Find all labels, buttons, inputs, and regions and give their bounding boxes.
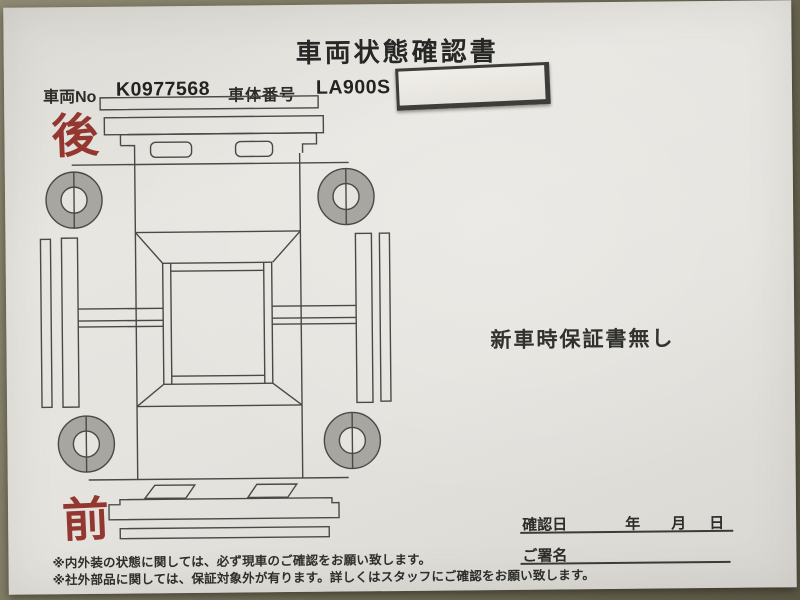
desk-background: { "photo": { "title": "車両状態確認書", "header… [0,0,800,600]
car-body-lines [39,95,392,539]
privacy-sticker [395,62,551,111]
document-paper: 車両状態確認書 車両No K0977568 車体番号 LA900S 後 前 [3,0,797,595]
warranty-note: 新車時保証書無し [490,322,674,354]
page-title: 車両状態確認書 [295,31,498,70]
footnote-aftermarket-parts: ※社外部品に関しては、保証対象外が有ります。詳しくはスタッフにご確認をお願い致し… [53,564,596,588]
car-top-view-diagram [36,89,400,544]
